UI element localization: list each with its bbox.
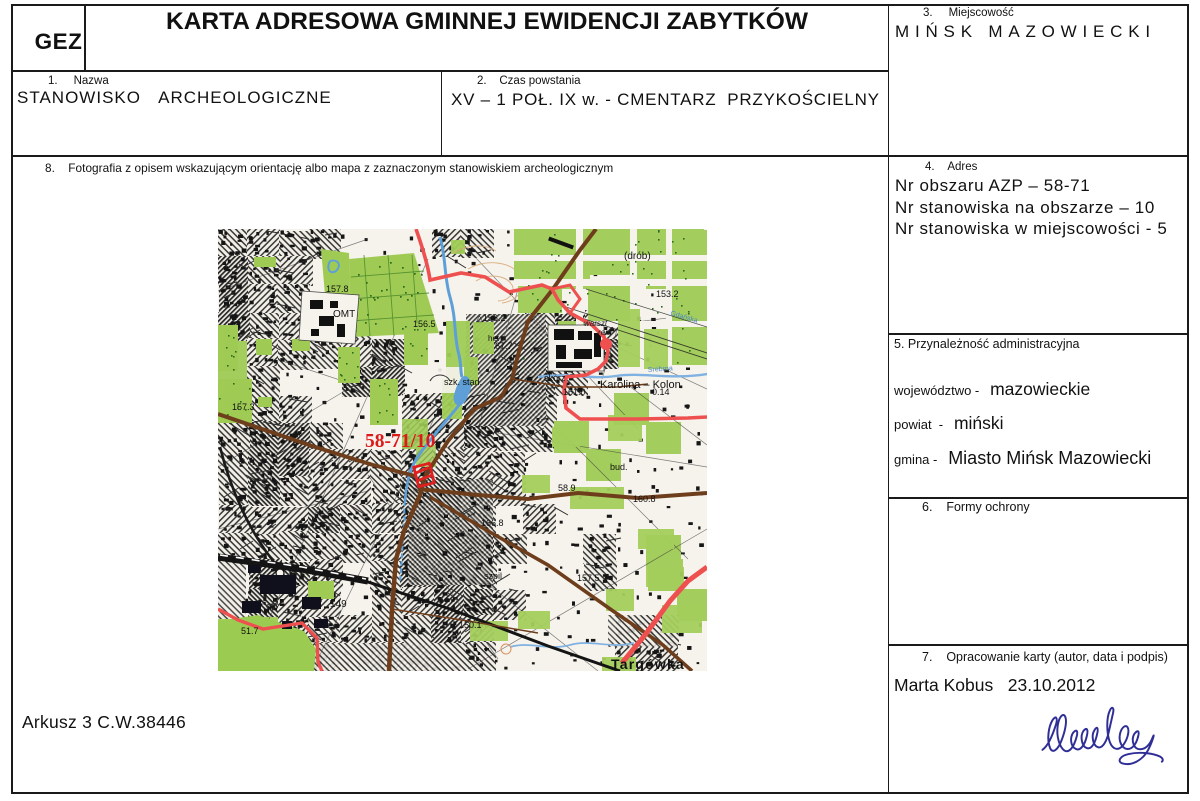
svg-text:Targówka: Targówka	[611, 656, 685, 671]
svg-text:szpil: szpil	[484, 571, 502, 581]
svg-text:△156.2: △156.2	[476, 313, 505, 323]
svg-text:161.0: 161.0	[563, 387, 586, 397]
svg-text:het: het	[488, 334, 500, 343]
svg-text:warszt: warszt	[584, 319, 608, 328]
svg-text:skórz: skórz	[544, 373, 566, 383]
svg-text:51.7: 51.7	[241, 626, 259, 636]
svg-text:bud.: bud.	[610, 462, 628, 472]
svg-text:58.9: 58.9	[558, 483, 576, 493]
svg-text:160.8: 160.8	[633, 494, 656, 504]
svg-text:150.1: 150.1	[459, 620, 482, 630]
svg-text:Karolina – Kolon: Karolina – Kolon	[600, 379, 681, 391]
svg-text:153.2: 153.2	[656, 289, 679, 299]
svg-text:58-71/10: 58-71/10	[365, 431, 435, 452]
svg-text:156.5: 156.5	[413, 319, 436, 329]
svg-text:rem: rem	[598, 328, 612, 337]
svg-text:149: 149	[330, 599, 347, 610]
svg-text:157.8: 157.8	[326, 284, 349, 294]
svg-text:OMT: OMT	[333, 309, 355, 320]
svg-text:157.5: 157.5	[577, 573, 600, 583]
svg-text:(drób): (drób)	[624, 251, 651, 262]
svg-text:157.3: 157.3	[232, 402, 255, 412]
svg-text:szk. stad.: szk. stad.	[444, 377, 482, 387]
svg-text:166.8: 166.8	[481, 518, 504, 528]
